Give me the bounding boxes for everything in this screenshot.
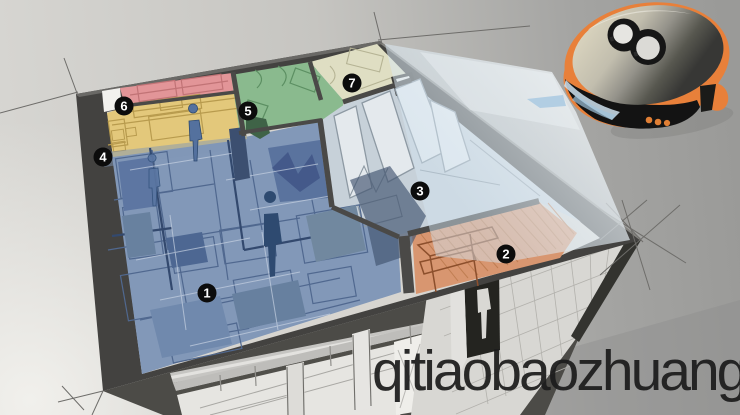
svg-text:1: 1 xyxy=(203,286,210,301)
svg-text:4: 4 xyxy=(99,150,107,165)
svg-text:2: 2 xyxy=(502,247,509,262)
svg-text:3: 3 xyxy=(416,184,423,199)
svg-text:7: 7 xyxy=(348,76,355,91)
svg-text:5: 5 xyxy=(244,104,251,119)
svg-text:6: 6 xyxy=(120,99,127,114)
svg-text:qitiaobaozhuang: qitiaobaozhuang xyxy=(372,339,740,403)
